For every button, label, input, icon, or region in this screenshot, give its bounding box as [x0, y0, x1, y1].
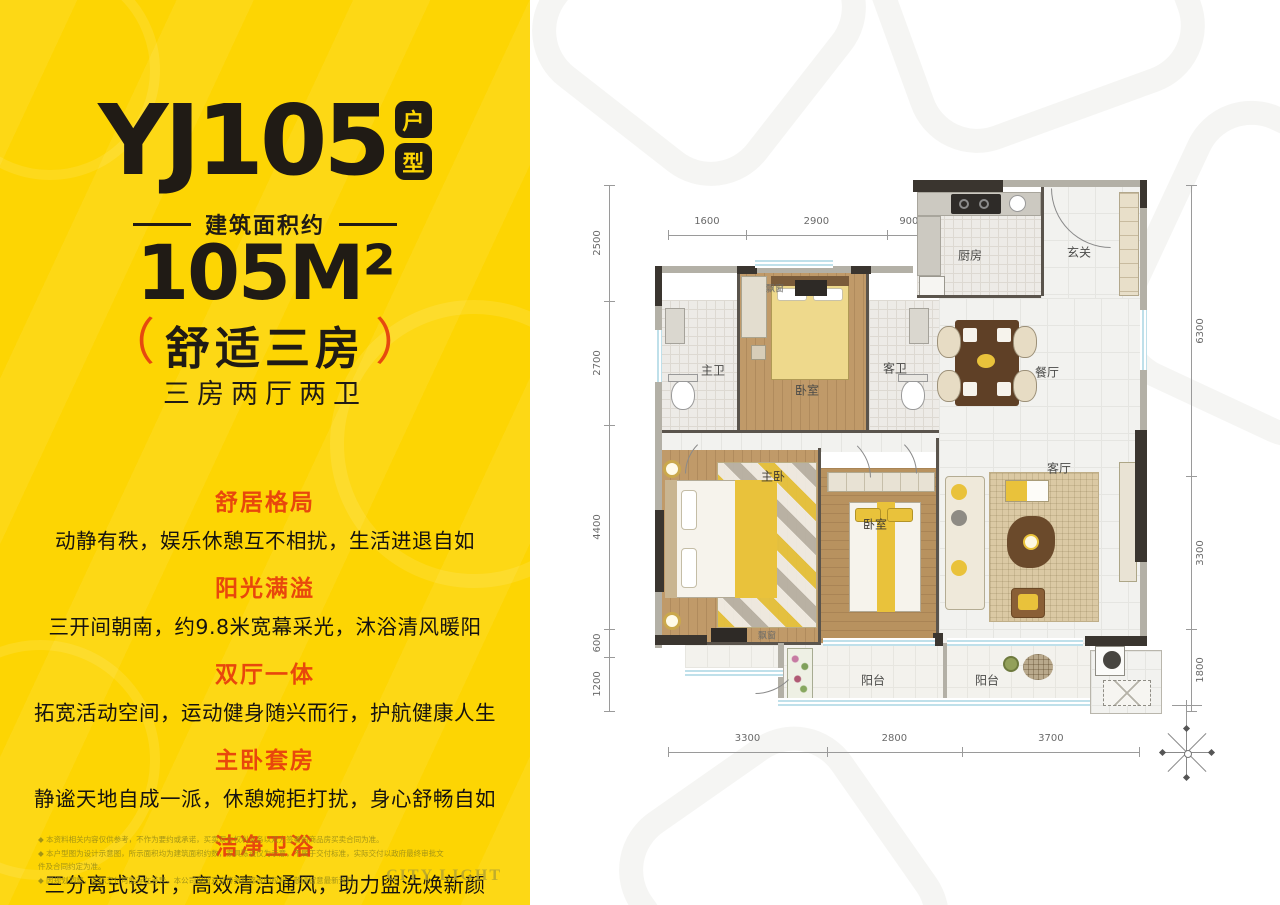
room-label-bay-window-bottom: 飘窗 — [758, 629, 776, 642]
dim-seg: 1200 — [598, 657, 620, 712]
slogan-paren-open: （ — [105, 317, 155, 367]
room-label-master-bedroom: 主卧 — [761, 468, 785, 485]
bed-pillow — [681, 548, 697, 588]
feature-desc: 三开间朝南，约9.8米宽幕采光，沐浴清风暖阳 — [0, 610, 530, 640]
bed-headboard — [665, 480, 677, 598]
bedside-lamp — [663, 612, 681, 630]
balcony-plant — [1003, 656, 1019, 672]
interior-wall — [818, 448, 821, 645]
washer-door — [1103, 651, 1121, 669]
place-setting — [997, 328, 1011, 342]
bath-vanity — [665, 308, 685, 344]
room-label-foyer: 玄关 — [1067, 244, 1091, 261]
dining-chair — [937, 326, 961, 358]
room-label-bedroom-top: 卧室 — [795, 382, 819, 399]
sofa-cushion — [951, 510, 967, 526]
wall-plaque — [795, 280, 827, 296]
plan-title-row: YJ105 户 型 — [0, 92, 530, 189]
interior-wall — [866, 272, 869, 432]
interior-wall — [737, 272, 740, 432]
badge-char-bottom: 型 — [395, 143, 432, 180]
sofa-cushion — [951, 560, 967, 576]
kitchen-sink — [1009, 195, 1026, 212]
slogan-paren-close: ） — [375, 317, 425, 367]
compass-rose — [1160, 726, 1214, 780]
fridge — [919, 276, 945, 296]
dim-seg: 1800 — [1180, 629, 1202, 712]
dimension-bottom: 3300 2800 3700 — [668, 735, 1140, 757]
dining-chair — [937, 370, 961, 402]
side-window — [1140, 310, 1147, 370]
bed-pillow — [681, 490, 697, 530]
wall-column — [1135, 430, 1147, 562]
dim-label: 3300 — [735, 733, 760, 744]
feature-title: 双厅一体 — [0, 655, 530, 689]
interior-wall — [1041, 186, 1044, 296]
bath-vanity — [909, 308, 929, 344]
dim-label: 600 — [592, 633, 603, 652]
disclaimer-line: ◆ 本资料相关内容仅供参考，不作为要约或承诺，买卖双方权利义务以双方签署的商品房… — [38, 833, 448, 847]
wall-column — [655, 510, 664, 592]
toilet-icon — [901, 380, 925, 410]
room-label-balcony-right: 阳台 — [975, 672, 999, 689]
place-setting — [963, 328, 977, 342]
balcony-door-window — [947, 638, 1083, 646]
bedside-lamp — [663, 460, 681, 478]
compass-point — [1208, 749, 1215, 756]
balcony-glass-rail — [778, 698, 1090, 708]
slogan-text: 舒适三房 — [165, 312, 365, 377]
room-label-kitchen: 厨房 — [958, 247, 982, 264]
stove-burner — [959, 199, 969, 209]
compass-point — [1159, 749, 1166, 756]
area-value: 105M² — [0, 228, 530, 317]
place-setting — [997, 382, 1011, 396]
tv-console — [711, 628, 747, 642]
interior-wall — [936, 438, 939, 645]
dimension-left: 2500 2700 4400 600 1200 — [598, 185, 620, 712]
compass-center — [1184, 750, 1192, 758]
dim-label: 2800 — [882, 733, 907, 744]
bed-pillow — [887, 508, 913, 522]
room-label-dining: 餐厅 — [1035, 364, 1059, 381]
dim-label: 1800 — [1195, 658, 1206, 683]
floor-plan: 厨房 玄关 主卫 卧室 客卫 飘窗 餐厅 主卧 卧室 客厅 飘窗 阳台 阳台 — [655, 180, 1167, 712]
dining-chair — [1013, 370, 1037, 402]
feature-desc: 动静有秩，娱乐休憩互不相扰，生活进退自如 — [0, 524, 530, 554]
feature-desc: 静谧天地自成一派，休憩婉拒打扰，身心舒畅自如 — [0, 782, 530, 812]
stove-burner — [979, 199, 989, 209]
table-flowers — [1023, 534, 1039, 550]
room-label-bay-window-top: 飘窗 — [766, 282, 784, 295]
dimension-right: 6300 3300 1800 — [1180, 185, 1202, 712]
dim-label: 6300 — [1195, 318, 1206, 343]
foyer-cabinet — [1119, 192, 1139, 296]
kitchen-counter-left — [917, 216, 941, 276]
compass-point — [1183, 774, 1190, 781]
compass-point — [1183, 725, 1190, 732]
divider-line — [339, 223, 397, 226]
wall-column — [913, 180, 1003, 192]
north-indicator-line — [1186, 700, 1187, 726]
fruit-bowl — [977, 354, 995, 368]
wall-column — [737, 266, 757, 274]
dim-seg: 3700 — [962, 735, 1140, 757]
info-panel: YJ105 户 型 建筑面积约 105M² （ 舒适三房 ） 三房两厅两卫 舒居… — [0, 0, 530, 905]
wall-column — [655, 266, 662, 306]
place-setting — [963, 382, 977, 396]
balcony-right-floor — [945, 643, 1090, 703]
outer-wall — [1140, 180, 1147, 645]
wall-column — [655, 635, 707, 645]
north-indicator-bar — [1172, 705, 1202, 706]
feature-title: 阳光满溢 — [0, 569, 530, 603]
dim-seg: 6300 — [1180, 185, 1202, 476]
divider-line — [133, 223, 191, 226]
armchair-cushion — [1018, 594, 1038, 610]
dim-seg: 2800 — [827, 735, 962, 757]
toilet-icon — [671, 380, 695, 410]
wall-column — [851, 266, 871, 274]
rattan-basket — [1023, 654, 1053, 680]
flyer-page: YJ105 户 型 建筑面积约 105M² （ 舒适三房 ） 三房两厅两卫 舒居… — [0, 0, 1280, 905]
ottoman — [1005, 480, 1049, 502]
dim-label: 3700 — [1038, 733, 1063, 744]
room-label-living: 客厅 — [1047, 460, 1071, 477]
toilet-tank — [668, 374, 698, 382]
dim-seg: 2500 — [598, 185, 620, 301]
room-label-bedroom-second: 卧室 — [863, 516, 887, 533]
decorative-curve — [592, 699, 977, 905]
dim-label: 4400 — [592, 514, 603, 539]
plan-type-badge: 户 型 — [395, 101, 432, 180]
slogan-row: （ 舒适三房 ） — [0, 312, 530, 377]
nightstand — [751, 345, 766, 360]
interior-wall — [661, 430, 939, 433]
interior-wall — [917, 295, 1041, 298]
wardrobe — [741, 276, 767, 338]
wall-column — [1140, 180, 1147, 208]
dining-chair — [1013, 326, 1037, 358]
dim-seg: 3300 — [1180, 476, 1202, 629]
wall-column — [1085, 636, 1147, 646]
balcony-rail — [943, 643, 947, 705]
dim-seg: 3300 — [668, 735, 827, 757]
layout-type: 三房两厅两卫 — [0, 372, 530, 411]
dim-seg: 600 — [598, 629, 620, 657]
room-label-master-bath: 主卫 — [701, 362, 725, 379]
room-label-guest-bath: 客卫 — [883, 360, 907, 377]
dim-label: 2500 — [592, 230, 603, 255]
dim-label: 2700 — [592, 350, 603, 375]
balcony-door-window — [823, 638, 935, 646]
feature-desc: 拓宽活动空间，运动健身随兴而行，护航健康人生 — [0, 696, 530, 726]
room-label-balcony-left: 阳台 — [861, 672, 885, 689]
utility-box — [1103, 680, 1151, 706]
dim-label: 1200 — [592, 672, 603, 697]
bay-window-top — [755, 258, 833, 268]
dim-label: 3300 — [1195, 540, 1206, 565]
feature-title: 主卧套房 — [0, 741, 530, 775]
decorative-curve — [843, 0, 1224, 173]
feature-title: 舒居格局 — [0, 483, 530, 517]
badge-char-top: 户 — [395, 101, 432, 138]
plan-title: YJ105 — [98, 92, 387, 189]
bath-window — [655, 330, 662, 382]
dim-seg: 2700 — [598, 301, 620, 426]
dim-seg: 4400 — [598, 425, 620, 628]
brand-logo: CITY LIGHT — [386, 867, 502, 885]
bed-throw — [735, 480, 777, 598]
sofa-cushion — [951, 484, 967, 500]
